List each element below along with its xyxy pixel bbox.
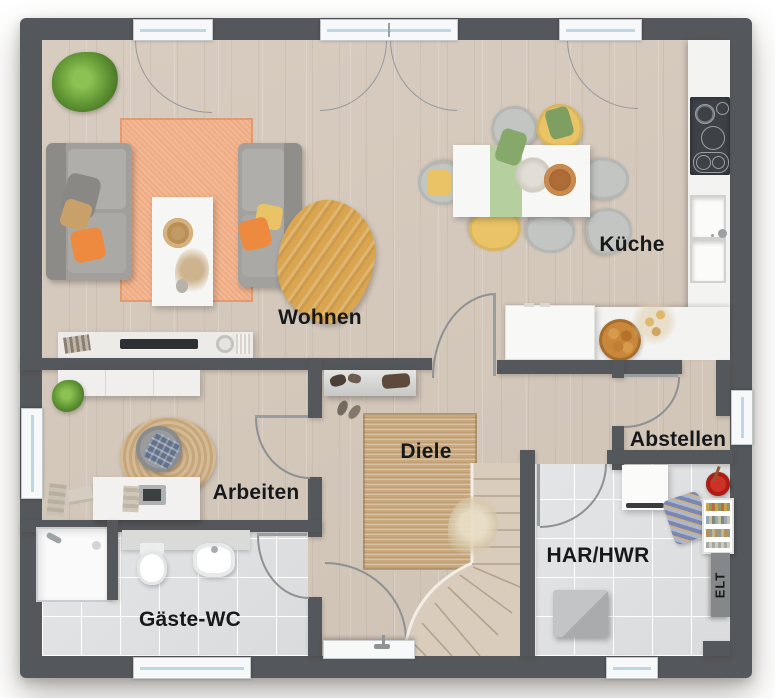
room-label-arbeiten: Arbeiten <box>213 481 300 505</box>
wall-wc-east-lower <box>308 597 322 656</box>
burner <box>696 155 711 170</box>
burner <box>701 126 725 150</box>
tv-sideboard <box>58 332 253 358</box>
room-label-kueche: Küche <box>599 233 664 257</box>
wall-stub <box>716 360 730 416</box>
burner <box>716 102 729 115</box>
washing-machine <box>622 465 668 510</box>
books <box>122 486 139 513</box>
tv-icon <box>120 339 198 349</box>
books <box>46 483 66 517</box>
room-label-gaeste-wc: Gäste-WC <box>139 608 241 632</box>
door-leaf <box>624 374 678 377</box>
cooktop <box>690 97 730 175</box>
laptop-screen <box>143 489 161 501</box>
window-glass <box>741 397 744 438</box>
wall-abstellen-west-upper <box>612 360 624 378</box>
green-cloth <box>544 105 575 140</box>
room-label-diele: Diele <box>400 440 451 464</box>
sofa-left <box>46 143 132 280</box>
yellow-cushion <box>427 170 451 196</box>
washer-door-slot <box>626 503 664 508</box>
toilet-icon <box>137 543 167 585</box>
desk <box>93 477 200 520</box>
faucet-icon <box>718 229 727 238</box>
window-bottom-har <box>606 657 658 679</box>
door-leaf <box>257 533 307 536</box>
wall-wohnen-south <box>20 358 432 370</box>
books <box>63 334 91 353</box>
sink-basin <box>690 239 726 283</box>
window-bottom-wc <box>133 657 251 679</box>
shoes-on-shelf <box>329 373 347 388</box>
door-leaf <box>255 415 308 418</box>
room-label-abstellen: Abstellen <box>630 428 726 452</box>
bag <box>381 373 410 389</box>
red-bucket <box>706 472 730 496</box>
winder-staircase <box>380 463 520 656</box>
copper-bowl <box>544 164 576 196</box>
washbasin-icon <box>193 543 235 577</box>
burner <box>712 156 725 169</box>
window-right-abstellen <box>731 390 753 445</box>
shower <box>36 527 113 602</box>
window-glass <box>31 415 34 492</box>
toilet-bowl <box>137 551 167 585</box>
entrance-door <box>323 640 415 659</box>
fridge-handle <box>540 303 550 307</box>
room-label-har-hwr: HAR/HWR <box>547 544 650 568</box>
shelf-items <box>706 516 730 524</box>
laptop-icon <box>138 485 166 505</box>
window-glass <box>566 29 635 32</box>
shelf-items <box>706 503 730 511</box>
window-glass <box>140 667 244 670</box>
wall-har-north <box>607 450 733 464</box>
speaker-icon <box>216 335 234 353</box>
shelf-items <box>706 529 730 537</box>
woven-tray <box>163 218 193 248</box>
floorplan-canvas: Wohnen Küche Arbeiten Diele Abstellen HA… <box>0 0 775 698</box>
room-label-elt: ELT <box>713 572 728 599</box>
window-mullion <box>388 23 390 37</box>
orange-pillow <box>69 226 107 264</box>
window-left-arbeiten <box>21 408 43 499</box>
coffee-table <box>152 197 213 306</box>
shoes-on-shelf <box>347 373 362 385</box>
window-glass <box>140 29 206 32</box>
door-leaf <box>537 464 540 526</box>
shelf-divider <box>105 370 106 396</box>
wall-kueche-south <box>497 360 682 374</box>
room-label-wohnen: Wohnen <box>278 306 362 330</box>
wall-arbeiten-east-upper <box>308 358 322 418</box>
books <box>236 334 250 354</box>
window-top-kueche <box>559 19 642 41</box>
freezer-box <box>553 590 608 637</box>
hall-console <box>324 370 416 396</box>
floorplan: Wohnen Küche Arbeiten Diele Abstellen HA… <box>20 18 752 678</box>
wall-shower-partition <box>107 520 118 600</box>
vase <box>176 279 188 293</box>
window-top-wohnen <box>133 19 213 41</box>
shelf-items <box>706 542 730 548</box>
utility-shelf <box>702 498 734 554</box>
shower-head-icon <box>46 532 63 545</box>
basin-faucet <box>211 546 218 553</box>
kitchen-counter-right <box>688 40 730 330</box>
wall-notch <box>703 641 730 656</box>
wall-diele-east <box>520 450 535 656</box>
door-leaf <box>493 293 496 376</box>
window-glass <box>613 667 651 670</box>
fridge <box>505 305 595 360</box>
fridge-handle <box>524 303 534 307</box>
door-handle-icon <box>382 635 385 645</box>
window-top-double <box>320 19 458 41</box>
sofa-cushion <box>242 149 284 211</box>
burner <box>695 104 715 124</box>
shelf-divider <box>153 370 154 396</box>
shower-drain <box>92 541 101 550</box>
